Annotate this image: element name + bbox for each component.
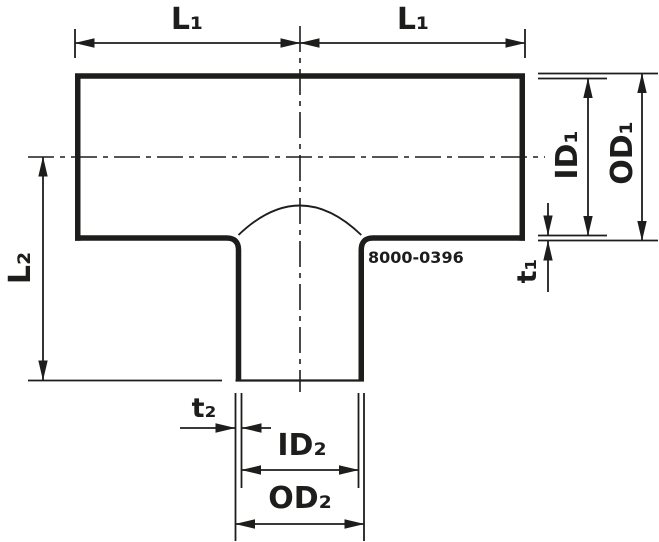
l1-right-label: L₁: [397, 2, 429, 37]
id2-label: ID₂: [277, 428, 326, 463]
tee-drawing-canvas: L₁ L₁ L₂ ID₁ OD₁ t₁ t₂ ID₂ OD₂ 8000-0396: [0, 0, 659, 542]
od2-label: OD₂: [268, 481, 332, 516]
l2-label: L₂: [3, 252, 38, 284]
id1-label: ID₁: [550, 130, 585, 179]
extension-lines: [28, 29, 658, 541]
dimension-lines: [43, 43, 642, 524]
t2-label: t₂: [192, 393, 217, 424]
reducing-tee-diagram: L₁ L₁ L₂ ID₁ OD₁ t₁ t₂ ID₂ OD₂ 8000-0396: [0, 0, 659, 542]
od1-label: OD₁: [605, 121, 640, 185]
t1-label: t₁: [512, 259, 543, 284]
part-number: 8000-0396: [368, 248, 464, 267]
centerlines: [28, 26, 545, 392]
l1-left-label: L₁: [171, 2, 203, 37]
run-bottom-left-and-branch-left-wall: [75, 238, 239, 381]
